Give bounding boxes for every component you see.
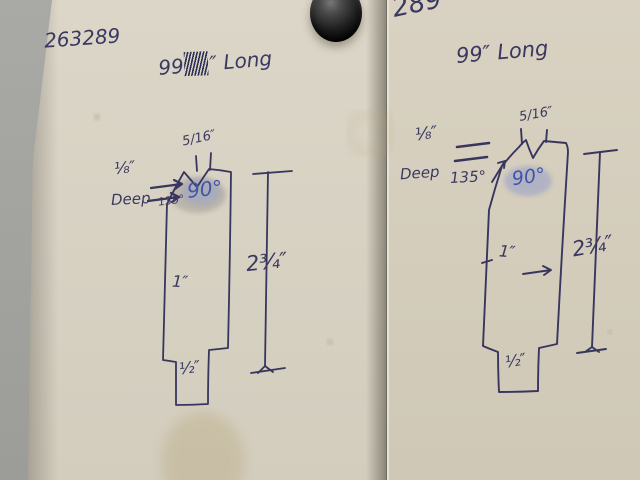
left-depth-word-label: Deep [111,191,151,208]
right-body-width-label: 1″ [498,243,515,260]
left-length-note-prefix: 99 [157,54,184,80]
right-notch-left-tick [521,129,522,144]
left-groove-depth-label: ⅛″ [113,159,136,177]
right-width-dimension [482,260,551,275]
left-notch-pointer-tick [196,156,197,171]
left-notch-angle-label: 90° [186,177,223,201]
right-depth-word-label: Deep [400,165,440,183]
left-part-number: 263289 [43,25,121,50]
left-tab-width-label: ½″ [178,359,202,378]
left-notch-side-tick [210,153,211,170]
right-groove-depth-label: ⅛″ [414,124,439,144]
right-notch-right-tick [546,130,547,142]
photo-of-sketches: 263289 99″ Long 5/16″ ⅛″ Deep 135° 90° 1… [0,0,640,480]
left-chamfer-angle-label: 135° [157,193,185,208]
right-depth-arrows [455,143,489,161]
right-notch-angle-label: 90° [511,166,547,190]
right-tab-width-label: ½″ [504,351,528,370]
scribbled-out-text [184,51,209,76]
right-chamfer-angle-label: 135° [450,169,487,186]
left-body-length-label: 2¾″ [245,250,289,275]
left-body-width-label: 1″ [172,274,189,291]
ink-layer [0,0,640,480]
